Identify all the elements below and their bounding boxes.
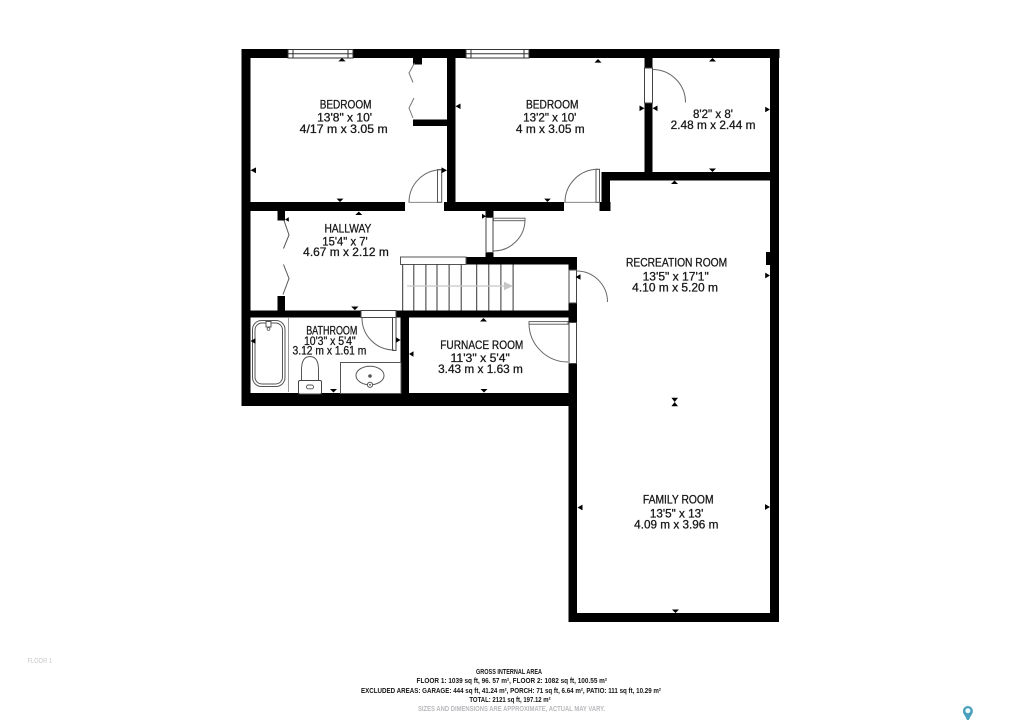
svg-text:SIZES AND DIMENSIONS ARE APPRO: SIZES AND DIMENSIONS ARE APPROXIMATE, AC… [418,704,605,713]
svg-text:HALLWAY: HALLWAY [324,223,371,236]
svg-text:FURNACE ROOM: FURNACE ROOM [440,339,523,352]
svg-text:FAMILY ROOM: FAMILY ROOM [643,493,714,506]
svg-text:RECREATION ROOM: RECREATION ROOM [626,256,727,269]
svg-text:4.10 m x 5.20 m: 4.10 m x 5.20 m [632,281,718,294]
svg-text:4 m x 3.05 m: 4 m x 3.05 m [516,123,585,136]
svg-text:4/17 m x 3.05 m: 4/17 m x 3.05 m [300,123,388,136]
svg-text:BEDROOM: BEDROOM [526,98,579,111]
svg-text:TOTAL: 2121 sq ft, 197.12 m²: TOTAL: 2121 sq ft, 197.12 m² [469,695,551,704]
svg-text:EXCLUDED AREAS: GARAGE: 444 sq: EXCLUDED AREAS: GARAGE: 444 sq ft, 41.24… [361,686,662,695]
svg-text:GROSS INTERNAL AREA: GROSS INTERNAL AREA [476,667,542,676]
svg-text:FLOOR 1: FLOOR 1 [28,656,53,665]
svg-text:2.48 m x 2.44 m: 2.48 m x 2.44 m [671,119,756,132]
svg-text:3.43 m x 1.63 m: 3.43 m x 1.63 m [438,363,523,376]
svg-text:BEDROOM: BEDROOM [320,98,372,111]
svg-text:FLOOR 1: 1039 sq ft, 96. 57 m²: FLOOR 1: 1039 sq ft, 96. 57 m², FLOOR 2:… [417,676,608,685]
svg-text:4.67 m x 2.12 m: 4.67 m x 2.12 m [303,246,389,259]
svg-text:3.12 m x 1.61 m: 3.12 m x 1.61 m [293,344,367,357]
svg-text:4.09 m x 3.96 m: 4.09 m x 3.96 m [634,519,718,532]
